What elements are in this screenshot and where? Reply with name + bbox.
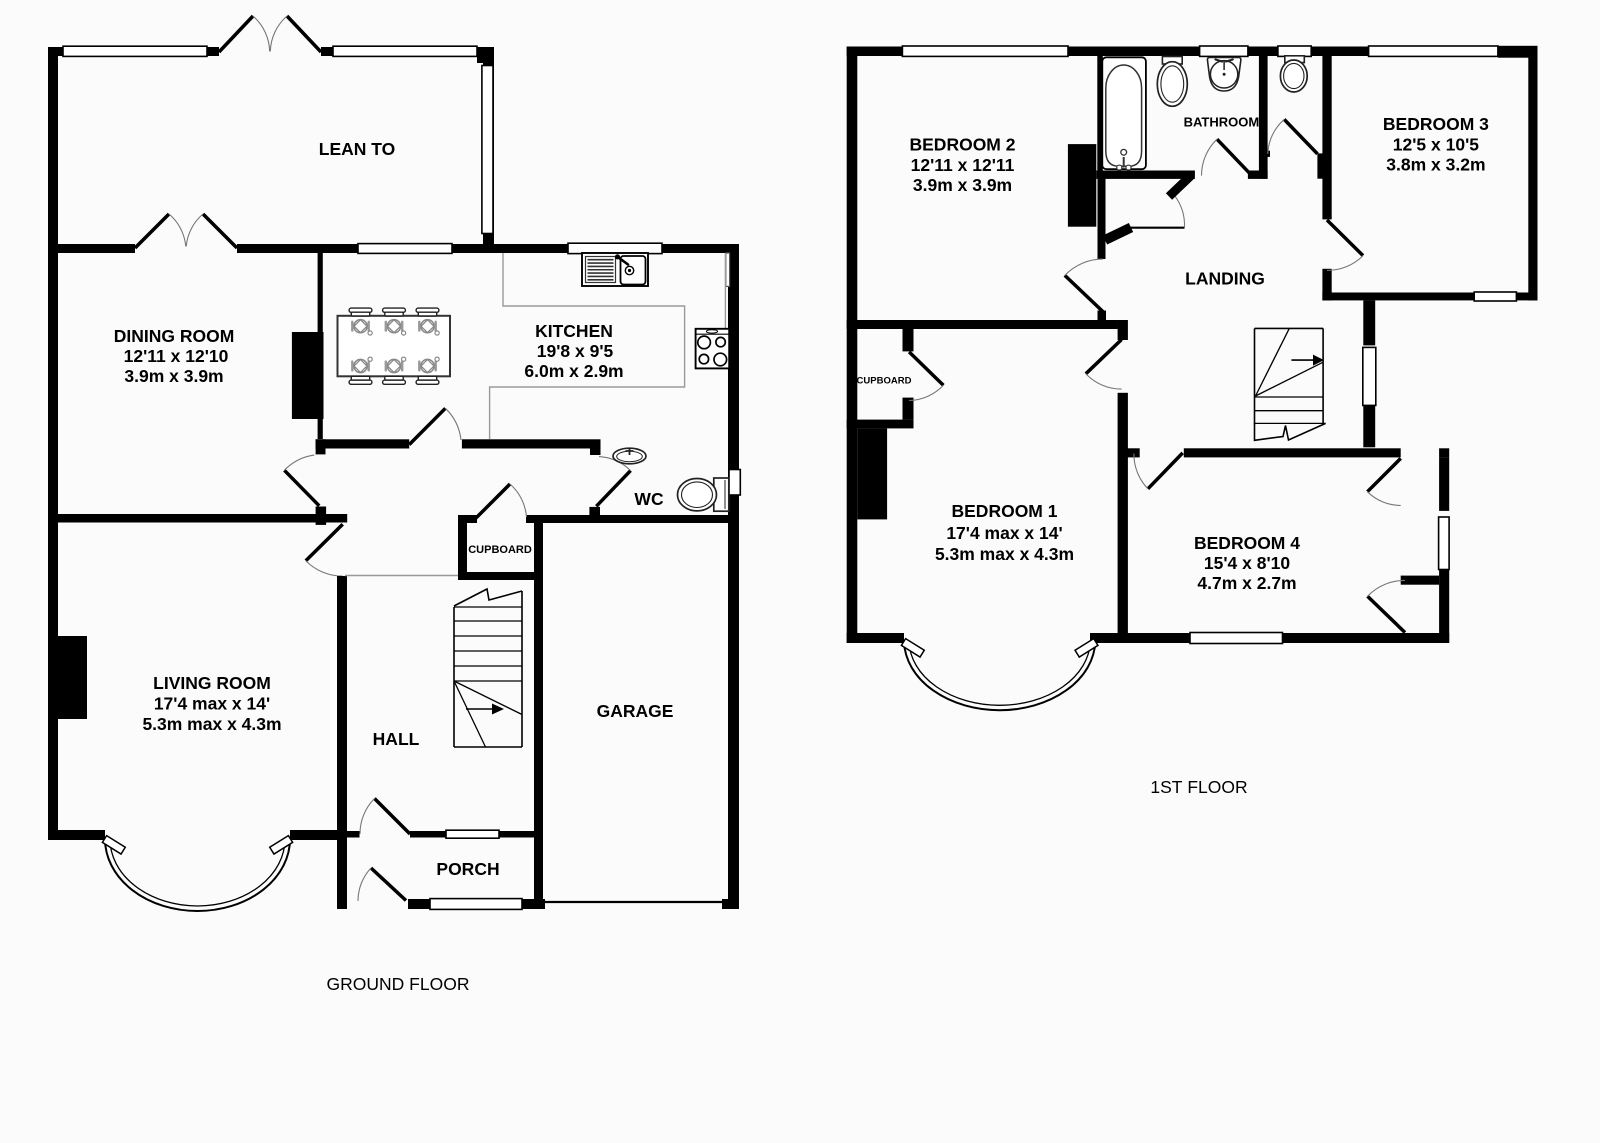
svg-text:19'8 x 9'5: 19'8 x 9'5: [537, 341, 614, 361]
svg-text:DINING ROOM: DINING ROOM: [114, 326, 235, 346]
svg-text:HALL: HALL: [373, 729, 420, 749]
svg-text:3.8m x 3.2m: 3.8m x 3.2m: [1386, 155, 1485, 175]
svg-text:17'4 max x 14': 17'4 max x 14': [946, 523, 1062, 543]
svg-text:3.9m x 3.9m: 3.9m x 3.9m: [913, 175, 1012, 195]
svg-text:12'11 x 12'10: 12'11 x 12'10: [124, 346, 229, 366]
svg-text:WC: WC: [634, 489, 664, 509]
svg-text:CUPBOARD: CUPBOARD: [468, 544, 532, 556]
svg-text:PORCH: PORCH: [436, 859, 499, 879]
svg-text:5.3m max x 4.3m: 5.3m max x 4.3m: [142, 714, 281, 734]
svg-text:LEAN TO: LEAN TO: [319, 139, 396, 159]
svg-text:12'11 x 12'11: 12'11 x 12'11: [911, 155, 1015, 175]
svg-text:BEDROOM 2: BEDROOM 2: [910, 135, 1016, 155]
svg-text:BEDROOM 1: BEDROOM 1: [952, 501, 1058, 521]
svg-text:BEDROOM 3: BEDROOM 3: [1383, 114, 1489, 134]
svg-text:15'4 x 8'10: 15'4 x 8'10: [1204, 553, 1290, 573]
svg-text:17'4 max x 14': 17'4 max x 14': [154, 694, 270, 714]
svg-text:LIVING ROOM: LIVING ROOM: [153, 673, 271, 693]
svg-text:3.9m x 3.9m: 3.9m x 3.9m: [124, 366, 223, 386]
svg-text:BATHROOM: BATHROOM: [1184, 115, 1260, 130]
svg-text:1ST FLOOR: 1ST FLOOR: [1150, 777, 1247, 797]
svg-text:4.7m x 2.7m: 4.7m x 2.7m: [1197, 573, 1296, 593]
svg-text:LANDING: LANDING: [1185, 269, 1265, 289]
svg-text:12'5 x 10'5: 12'5 x 10'5: [1393, 134, 1479, 154]
svg-text:GARAGE: GARAGE: [597, 701, 674, 721]
svg-text:GROUND FLOOR: GROUND FLOOR: [327, 974, 470, 994]
svg-text:5.3m max x 4.3m: 5.3m max x 4.3m: [935, 544, 1074, 564]
svg-text:KITCHEN: KITCHEN: [535, 321, 613, 341]
svg-text:BEDROOM 4: BEDROOM 4: [1194, 533, 1300, 553]
svg-text:CUPBOARD: CUPBOARD: [857, 376, 912, 387]
svg-text:6.0m x 2.9m: 6.0m x 2.9m: [524, 361, 623, 381]
